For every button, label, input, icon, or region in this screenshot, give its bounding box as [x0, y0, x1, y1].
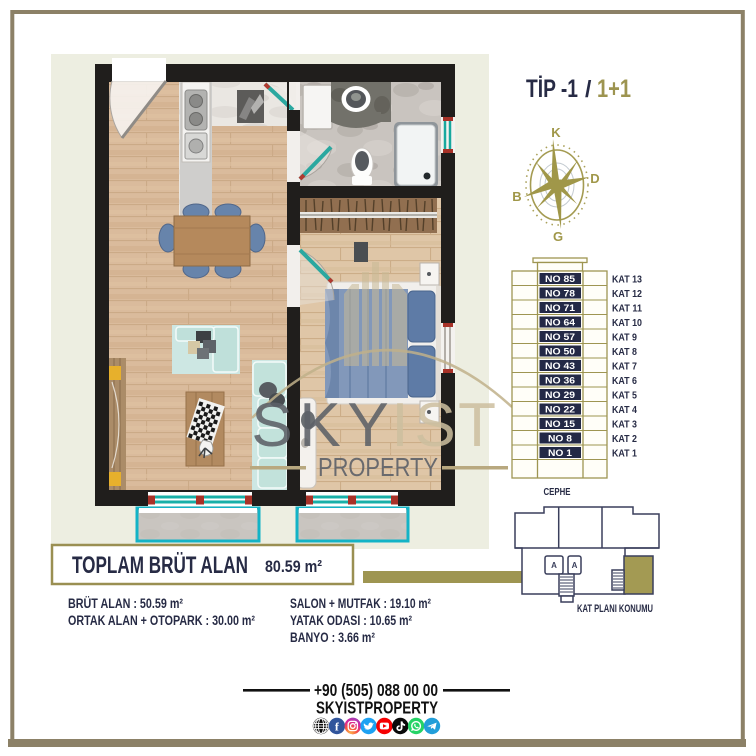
svg-text:D: D [590, 171, 599, 186]
svg-text:NO 85: NO 85 [545, 274, 576, 285]
svg-text:NO 57: NO 57 [545, 332, 575, 343]
svg-text:KAT 3: KAT 3 [612, 419, 637, 431]
svg-text:KAT 6: KAT 6 [612, 375, 637, 387]
svg-text:NO 71: NO 71 [545, 303, 576, 314]
svg-text:B: B [512, 189, 521, 204]
svg-text:YATAK ODASI : 10.65 m²: YATAK ODASI : 10.65 m² [290, 613, 412, 628]
svg-text:NO 15: NO 15 [545, 419, 576, 430]
svg-text:SALON + MUTFAK : 19.10 m²: SALON + MUTFAK : 19.10 m² [290, 596, 431, 611]
svg-text:1+1: 1+1 [597, 75, 631, 103]
svg-text:PROPERTY: PROPERTY [318, 452, 438, 482]
svg-text:KAT 4: KAT 4 [612, 404, 637, 416]
svg-text:/: / [585, 76, 592, 102]
svg-text:NO 8: NO 8 [548, 433, 572, 444]
svg-text:A: A [572, 561, 578, 570]
svg-text:NO 78: NO 78 [545, 288, 575, 299]
svg-text:S: S [414, 391, 455, 460]
svg-text:NO 22: NO 22 [545, 404, 575, 415]
svg-text:NO 36: NO 36 [545, 375, 575, 386]
svg-text:ORTAK ALAN + OTOPARK : 30.00 m: ORTAK ALAN + OTOPARK : 30.00 m² [68, 613, 255, 628]
svg-text:KAT 13: KAT 13 [612, 274, 642, 286]
svg-text:NO 50: NO 50 [545, 346, 575, 357]
svg-text:K: K [299, 391, 340, 460]
svg-text:KAT 12: KAT 12 [612, 288, 642, 300]
svg-text:80.59 m²: 80.59 m² [265, 557, 322, 576]
svg-text:S: S [251, 391, 292, 460]
svg-text:BRÜT ALAN : 50.59 m²: BRÜT ALAN : 50.59 m² [68, 596, 183, 611]
svg-text:KAT 11: KAT 11 [612, 303, 642, 315]
svg-text:A: A [551, 561, 557, 570]
svg-text:I: I [391, 391, 408, 460]
svg-text:KAT 2: KAT 2 [612, 433, 637, 445]
svg-text:TOPLAM BRÜT ALAN: TOPLAM BRÜT ALAN [72, 552, 248, 579]
svg-text:NO 64: NO 64 [545, 317, 576, 328]
svg-text:KAT 9: KAT 9 [612, 332, 637, 344]
svg-text:Y: Y [347, 391, 388, 460]
svg-text:T: T [458, 391, 496, 460]
svg-text:KAT 7: KAT 7 [612, 361, 637, 373]
svg-text:TİP -1: TİP -1 [526, 75, 578, 103]
svg-text:SKYISTPROPERTY: SKYISTPROPERTY [316, 698, 438, 718]
svg-text:KAT 8: KAT 8 [612, 346, 637, 358]
svg-text:G: G [553, 229, 563, 244]
svg-text:K: K [551, 125, 561, 140]
svg-text:KAT PLANI KONUMU: KAT PLANI KONUMU [577, 603, 653, 615]
svg-text:KAT 1: KAT 1 [612, 448, 637, 460]
svg-text:NO 29: NO 29 [545, 390, 575, 401]
svg-text:KAT 10: KAT 10 [612, 317, 642, 329]
svg-text:NO 1: NO 1 [548, 448, 573, 459]
svg-text:CEPHE: CEPHE [544, 486, 571, 498]
svg-text:BANYO : 3.66 m²: BANYO : 3.66 m² [290, 630, 375, 645]
svg-text:KAT 5: KAT 5 [612, 390, 637, 402]
svg-text:NO 43: NO 43 [545, 361, 575, 372]
